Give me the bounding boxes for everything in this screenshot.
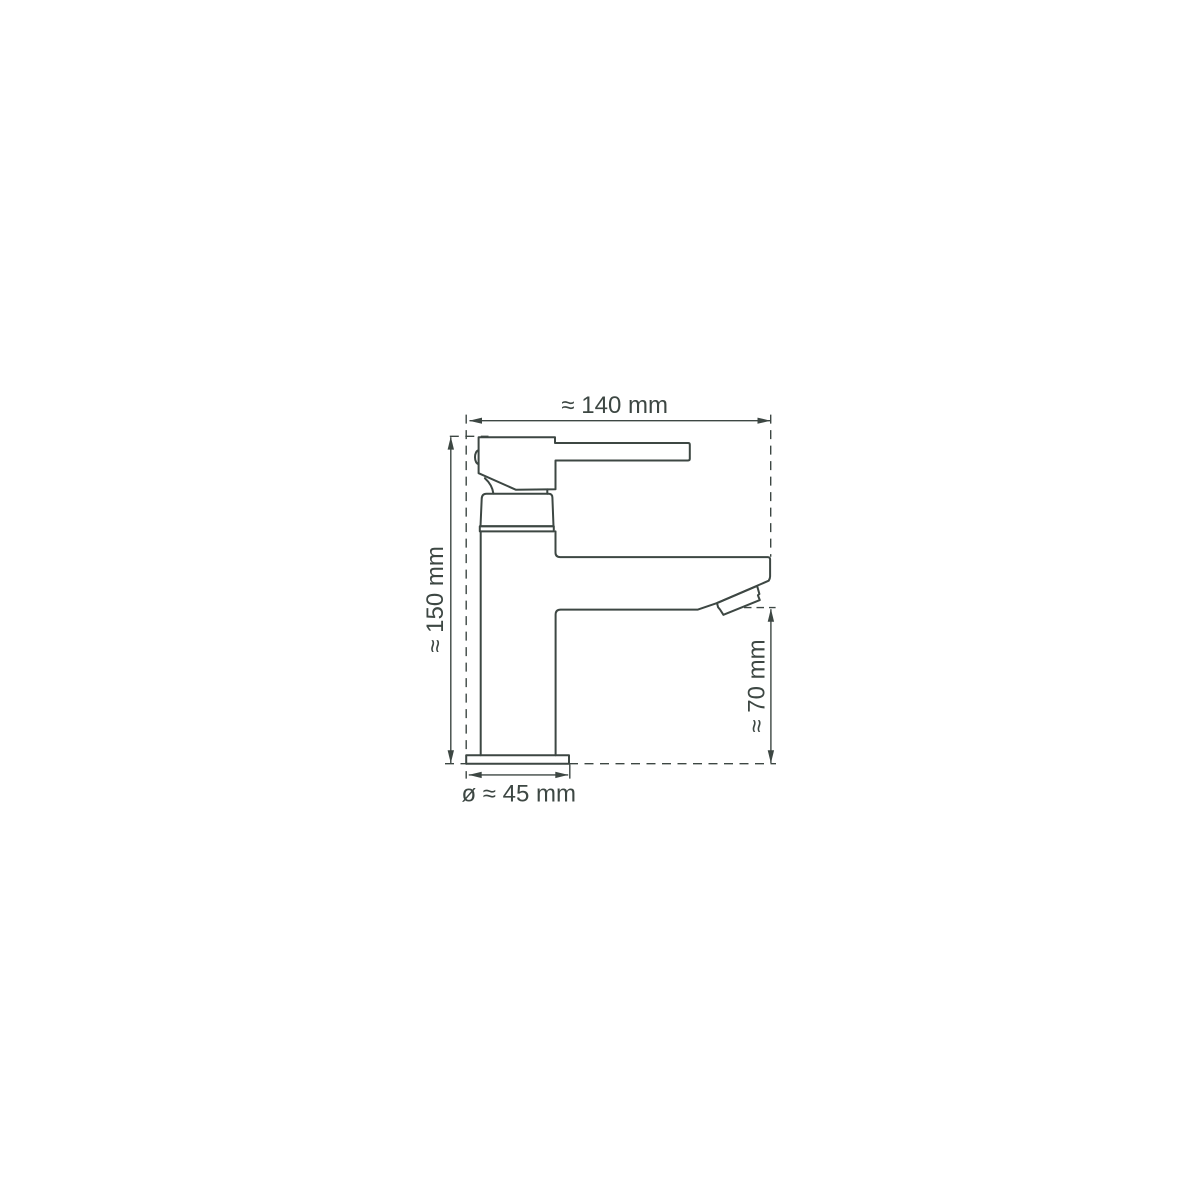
svg-text:≈ 150 mm: ≈ 150 mm bbox=[422, 546, 449, 653]
svg-text:≈ 140 mm: ≈ 140 mm bbox=[561, 392, 668, 419]
svg-text:ø ≈ 45 mm: ø ≈ 45 mm bbox=[461, 781, 576, 808]
svg-text:≈ 70 mm: ≈ 70 mm bbox=[744, 639, 771, 732]
